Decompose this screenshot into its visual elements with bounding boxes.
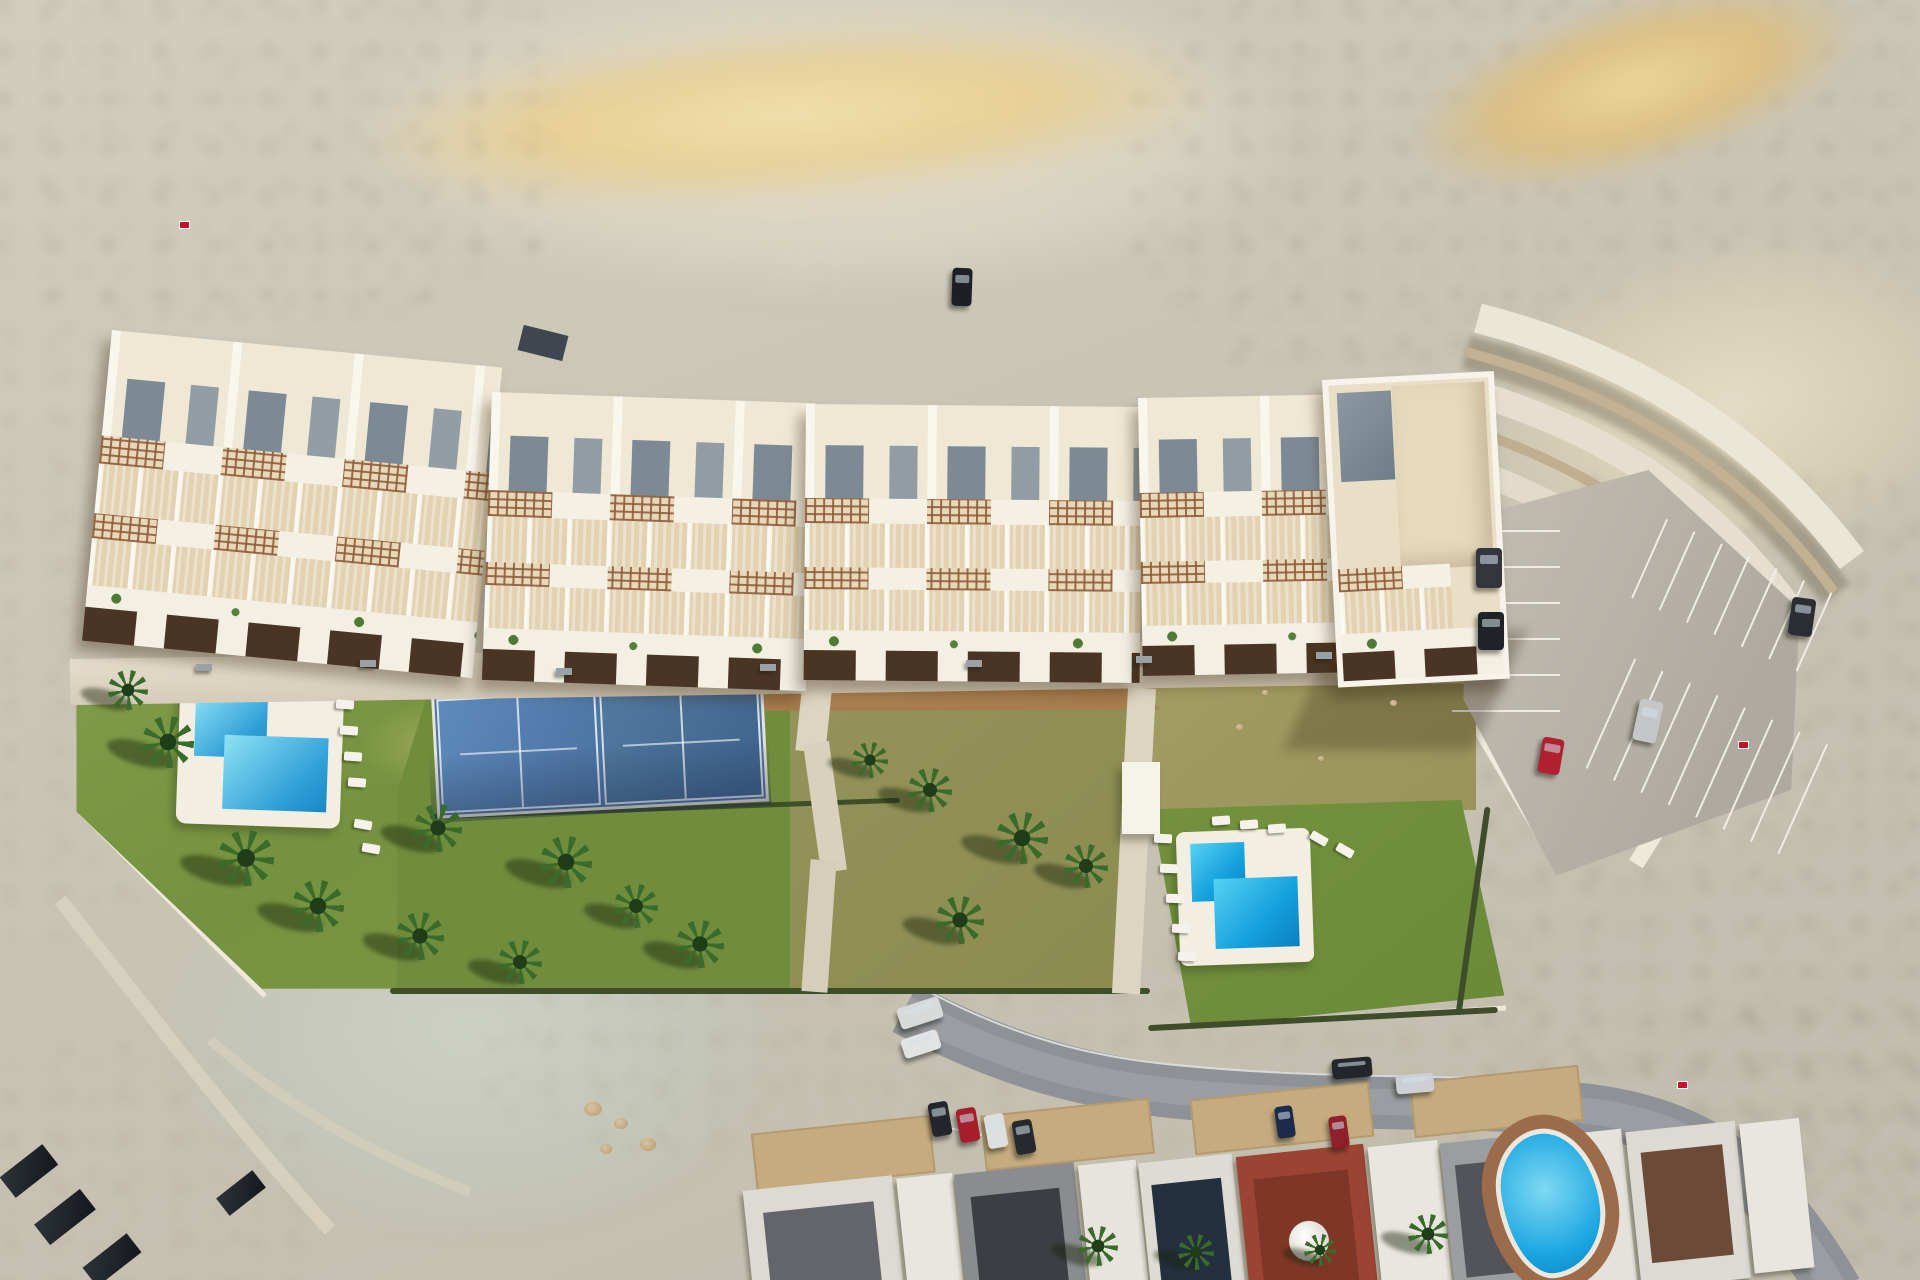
sun-lounger [1160, 864, 1178, 874]
car [1632, 698, 1664, 744]
car [1395, 1072, 1435, 1094]
bench [760, 664, 776, 671]
sun-lounger [1212, 815, 1231, 825]
sun-lounger [344, 751, 363, 761]
palm-tree [498, 940, 542, 984]
solar-panel [216, 1170, 266, 1216]
sun-lounger [1172, 924, 1190, 934]
boulder [584, 1102, 602, 1116]
palm-tree [108, 670, 148, 710]
scene-items-layer [0, 0, 1920, 1280]
palm-tree [396, 912, 444, 960]
car [900, 1029, 942, 1060]
solar-panel [34, 1189, 96, 1245]
solar-panel [0, 1144, 58, 1198]
palm-tree [908, 768, 952, 812]
boulder [1236, 724, 1243, 730]
palm-tree [414, 804, 462, 852]
palm-tree [996, 812, 1048, 864]
boulder [1318, 756, 1324, 761]
sun-lounger [353, 819, 372, 831]
bench [1136, 656, 1152, 663]
red-sign [1739, 742, 1748, 748]
car [951, 268, 972, 307]
car [927, 1101, 953, 1138]
car [983, 1113, 1009, 1150]
sun-lounger [340, 725, 359, 735]
palm-tree [936, 896, 984, 944]
aerial-photo-stage: Aerial drone render of a new hillside re… [0, 0, 1920, 1280]
red-sign [180, 222, 189, 228]
sun-lounger [1178, 952, 1196, 962]
boulder [1390, 700, 1397, 706]
palm-tree [1408, 1214, 1448, 1254]
palm-tree [142, 716, 194, 768]
car [1011, 1119, 1037, 1156]
boulder [600, 1144, 612, 1154]
palm-tree [1064, 844, 1108, 888]
bench [1316, 652, 1332, 659]
palm-tree [614, 884, 658, 928]
palm-tree [1304, 1234, 1336, 1266]
sun-lounger [1335, 842, 1355, 859]
car [1478, 612, 1504, 650]
car [896, 996, 945, 1031]
bench [556, 668, 572, 675]
palm-tree [676, 920, 724, 968]
sun-lounger [348, 777, 367, 787]
sun-lounger [1240, 819, 1259, 829]
red-sign [1678, 1082, 1687, 1088]
bench [360, 660, 376, 667]
car [1328, 1115, 1350, 1149]
palm-tree [852, 742, 888, 778]
car [1476, 548, 1502, 588]
boulder [1262, 690, 1268, 695]
sun-lounger [1166, 894, 1184, 904]
palm-tree [540, 836, 592, 888]
sun-lounger [1268, 823, 1287, 833]
sun-lounger [1154, 834, 1172, 844]
palm-tree [1178, 1234, 1214, 1270]
car [1331, 1056, 1373, 1079]
bench [966, 660, 982, 667]
car [1274, 1105, 1296, 1139]
boulder [640, 1138, 656, 1151]
palm-tree [292, 880, 344, 932]
boulder [614, 1118, 628, 1129]
palm-tree [1078, 1226, 1118, 1266]
sun-lounger [336, 699, 355, 709]
sun-lounger [361, 843, 380, 855]
car [1787, 597, 1816, 638]
car [955, 1107, 981, 1144]
palm-tree [218, 830, 274, 886]
sun-lounger [1309, 830, 1329, 847]
car [1537, 736, 1565, 775]
bench [196, 664, 212, 671]
solar-panel [83, 1233, 142, 1280]
